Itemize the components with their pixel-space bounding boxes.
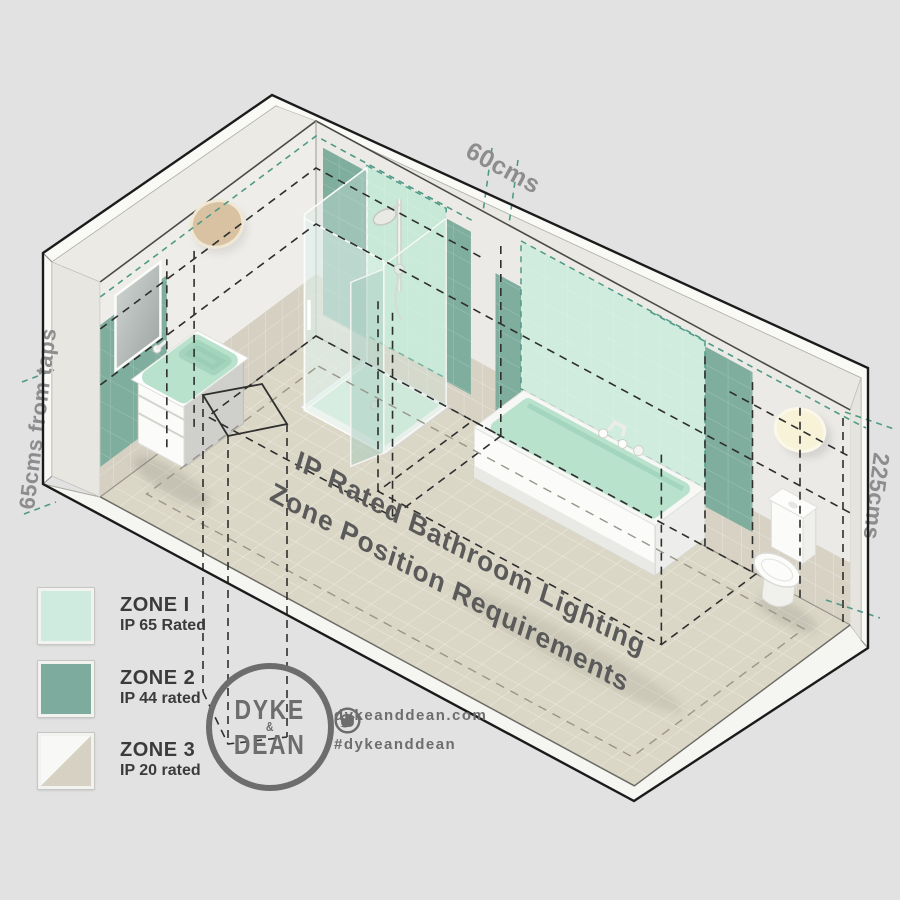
zone3-label: ZONE 3 — [120, 739, 201, 762]
zone3-rating: IP 20 rated — [120, 762, 201, 780]
zone2-rating: IP 44 rated — [120, 690, 201, 708]
wall-end-face-left — [52, 262, 100, 497]
logo-line-dean: DEAN — [234, 732, 306, 757]
shower-glass-door — [351, 269, 384, 466]
zone1-label: ZONE I — [120, 594, 206, 617]
hashtag-text: #dykeanddean — [334, 736, 487, 753]
dyke-and-dean-logo: DYKE & DEAN — [206, 663, 334, 791]
legend-item-zone3: ZONE 3 IP 20 rated — [38, 733, 201, 789]
svg-text:P: P — [343, 714, 353, 730]
zone2-swatch — [38, 661, 94, 717]
bath-tap-1 — [599, 429, 608, 438]
pinterest-icon[interactable]: P — [334, 707, 361, 734]
infographic-canvas: IP Rated Bathroom LightingZone Position … — [0, 0, 900, 900]
legend-item-zone2: ZONE 2 IP 44 rated — [38, 661, 201, 717]
zone2-label: ZONE 2 — [120, 667, 201, 690]
brand-block: DYKE & DEAN dykeanddean.com — [206, 663, 526, 803]
zone1-swatch — [38, 588, 94, 644]
zone1-rating: IP 65 Rated — [120, 617, 206, 635]
bath-tap-2 — [618, 439, 627, 448]
bath-handle — [634, 446, 644, 456]
zone2-panel-bath-right-tiles — [705, 346, 753, 532]
legend-item-zone1: ZONE I IP 65 Rated — [38, 588, 206, 644]
zone3-swatch — [38, 733, 94, 789]
